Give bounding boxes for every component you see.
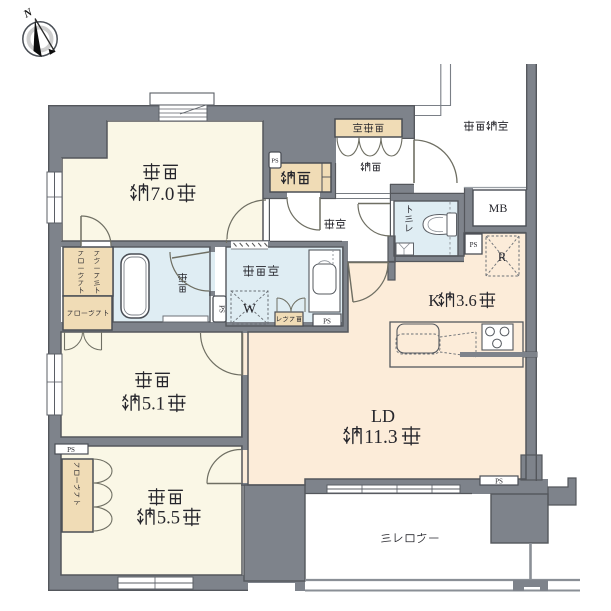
svg-text:R: R <box>498 250 507 264</box>
svg-text:5.1: 5.1 <box>142 395 165 415</box>
svg-text:PS: PS <box>323 318 331 326</box>
svg-text:11.3: 11.3 <box>364 427 397 448</box>
svg-text:PS: PS <box>495 478 503 486</box>
svg-text:PS: PS <box>67 446 75 454</box>
svg-text:PS: PS <box>218 305 226 313</box>
svg-text:3.6: 3.6 <box>456 291 477 310</box>
svg-text:W: W <box>243 301 256 316</box>
svg-text:5.5: 5.5 <box>157 509 180 529</box>
svg-text:7.0: 7.0 <box>151 184 175 205</box>
svg-text:K: K <box>428 291 440 310</box>
svg-text:MB: MB <box>489 201 508 215</box>
svg-text:PS: PS <box>271 158 279 165</box>
svg-text:PS: PS <box>470 241 478 249</box>
svg-text:LD: LD <box>371 406 395 426</box>
